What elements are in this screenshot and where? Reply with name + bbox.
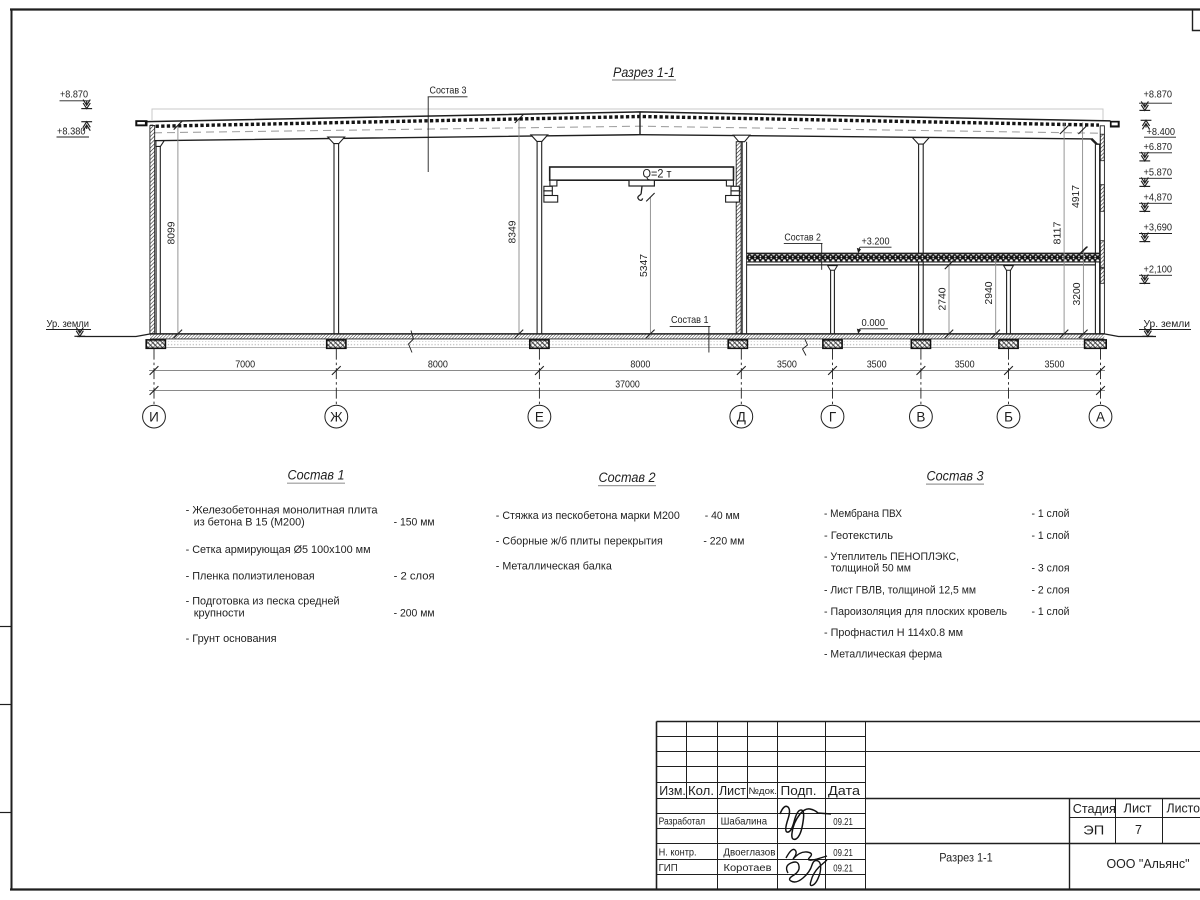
- svg-text:- 220 мм: - 220 мм: [703, 536, 744, 548]
- svg-text:Разрез 1-1: Разрез 1-1: [613, 64, 675, 80]
- svg-text:09.21: 09.21: [833, 817, 853, 828]
- svg-text:- 200 мм: - 200 мм: [394, 608, 435, 620]
- svg-text:7: 7: [1135, 823, 1142, 837]
- svg-text:3200: 3200: [1072, 282, 1083, 305]
- svg-text:+8.870: +8.870: [60, 89, 88, 101]
- svg-text:2940: 2940: [984, 281, 995, 304]
- svg-text:+5.870: +5.870: [1144, 166, 1173, 178]
- svg-text:09.21: 09.21: [833, 864, 853, 875]
- svg-text:8000: 8000: [630, 359, 650, 370]
- svg-text:3500: 3500: [955, 359, 975, 370]
- svg-text:из бетона В 15 (М200): из бетона В 15 (М200): [194, 517, 305, 529]
- svg-text:2740: 2740: [937, 287, 948, 310]
- svg-text:Листов: Листов: [1167, 802, 1200, 816]
- svg-text:Состав 2: Состав 2: [599, 470, 656, 485]
- svg-text:И: И: [149, 409, 159, 424]
- svg-text:толщиной 50 мм: толщиной 50 мм: [831, 563, 911, 575]
- svg-text:- 40 мм: - 40 мм: [705, 510, 740, 522]
- svg-text:Состав 1: Состав 1: [671, 315, 709, 326]
- svg-text:- Пленка полиэтиленовая: - Пленка полиэтиленовая: [186, 571, 315, 583]
- svg-text:8117: 8117: [1053, 221, 1064, 244]
- svg-text:Н. контр.: Н. контр.: [659, 848, 697, 859]
- svg-text:- Стяжка из пескобетона марки: - Стяжка из пескобетона марки М200: [496, 510, 680, 522]
- svg-text:+4,870: +4,870: [1144, 191, 1173, 203]
- svg-text:+8.400: +8.400: [1147, 126, 1176, 138]
- svg-text:Изм.: Изм.: [659, 784, 686, 798]
- svg-text:3500: 3500: [867, 359, 887, 370]
- svg-text:- 150 мм: - 150 мм: [394, 517, 435, 529]
- svg-text:- 1 слой: - 1 слой: [1032, 530, 1070, 542]
- svg-text:- 1 слой: - 1 слой: [1032, 508, 1070, 520]
- svg-text:5347: 5347: [639, 254, 650, 277]
- svg-text:+6.870: +6.870: [1144, 141, 1173, 153]
- svg-text:ООО "Альянс": ООО "Альянс": [1107, 856, 1190, 871]
- svg-text:4917: 4917: [1071, 185, 1082, 208]
- svg-text:37000: 37000: [615, 380, 640, 391]
- svg-text:Кол.: Кол.: [688, 784, 714, 798]
- svg-text:Лист: Лист: [1124, 802, 1152, 816]
- svg-text:- Сборные ж/б плиты перекрытия: - Сборные ж/б плиты перекрытия: [496, 536, 663, 548]
- svg-text:- Пароизоляция для плоских кро: - Пароизоляция для плоских кровель: [824, 606, 1007, 618]
- svg-text:Дата: Дата: [828, 784, 860, 798]
- svg-text:Состав 1: Состав 1: [288, 468, 345, 483]
- svg-text:Коротаев: Коротаев: [724, 863, 772, 874]
- svg-text:Q=2 т: Q=2 т: [643, 169, 673, 181]
- svg-text:ГИП: ГИП: [659, 863, 678, 874]
- svg-text:Лист: Лист: [719, 784, 746, 798]
- svg-text:- Мембрана ПВХ: - Мембрана ПВХ: [824, 508, 902, 520]
- svg-text:- Утеплитель ПЕНОПЛЭКС,: - Утеплитель ПЕНОПЛЭКС,: [824, 551, 959, 563]
- svg-text:- Железобетонная монолитная п: - Железобетонная монолитная плита: [186, 505, 379, 517]
- svg-text:- Подготовка из песка средней: - Подготовка из песка средней: [186, 596, 340, 608]
- svg-text:А: А: [1096, 409, 1105, 424]
- svg-text:Г: Г: [829, 409, 837, 424]
- svg-text:Подп.: Подп.: [781, 784, 817, 798]
- svg-text:№док.: №док.: [749, 786, 778, 797]
- svg-text:В: В: [916, 409, 925, 424]
- svg-text:Состав 3: Состав 3: [927, 469, 984, 484]
- svg-text:- Металлическая балка: - Металлическая балка: [496, 561, 613, 573]
- svg-text:+3,690: +3,690: [1144, 222, 1173, 234]
- svg-text:Б: Б: [1004, 409, 1013, 424]
- svg-text:- Геотекстиль: - Геотекстиль: [824, 530, 893, 542]
- svg-text:- Лист ГВЛВ, толщиной 12,5 мм: - Лист ГВЛВ, толщиной 12,5 мм: [824, 585, 976, 597]
- svg-text:8349: 8349: [507, 220, 518, 243]
- svg-text:8099: 8099: [166, 221, 177, 244]
- svg-text:Стадия: Стадия: [1073, 802, 1116, 816]
- svg-text:крупности: крупности: [194, 608, 245, 620]
- svg-text:- Металлическая ферма: - Металлическая ферма: [824, 649, 943, 661]
- svg-text:- Сетка армирующая Ø5 100х100: - Сетка армирующая Ø5 100х100 мм: [186, 544, 371, 556]
- svg-text:09.21: 09.21: [833, 848, 853, 859]
- svg-text:7000: 7000: [235, 359, 255, 370]
- svg-text:- Профнастил Н 114х0.8 мм: - Профнастил Н 114х0.8 мм: [824, 627, 963, 639]
- svg-text:+8.380: +8.380: [57, 126, 86, 138]
- svg-text:Д: Д: [737, 409, 746, 424]
- svg-text:3500: 3500: [777, 359, 797, 370]
- svg-text:Состав 2: Состав 2: [784, 232, 821, 243]
- svg-text:8000: 8000: [428, 359, 448, 370]
- svg-text:Разрез 1-1: Разрез 1-1: [939, 851, 993, 865]
- svg-text:- 2 слоя: - 2 слоя: [1032, 585, 1070, 597]
- svg-text:+2,100: +2,100: [1144, 263, 1173, 275]
- svg-text:- 3 слоя: - 3 слоя: [1032, 563, 1070, 575]
- svg-text:Двоеглазов: Двоеглазов: [723, 848, 775, 859]
- svg-text:- 2 слоя: - 2 слоя: [394, 571, 435, 583]
- svg-text:3500: 3500: [1045, 359, 1065, 370]
- svg-text:Состав 3: Состав 3: [430, 86, 467, 97]
- svg-text:ЭП: ЭП: [1083, 823, 1104, 838]
- svg-text:+3.200: +3.200: [862, 237, 890, 248]
- svg-text:Е: Е: [535, 409, 544, 424]
- svg-text:Шабалина: Шабалина: [721, 817, 768, 828]
- svg-text:+8.870: +8.870: [1144, 89, 1173, 101]
- svg-text:Разработал: Разработал: [659, 817, 706, 828]
- svg-text:0.000: 0.000: [862, 318, 886, 329]
- svg-text:- 1 слой: - 1 слой: [1032, 606, 1070, 618]
- svg-text:Ж: Ж: [330, 409, 343, 424]
- svg-text:- Грунт основания: - Грунт основания: [186, 633, 277, 645]
